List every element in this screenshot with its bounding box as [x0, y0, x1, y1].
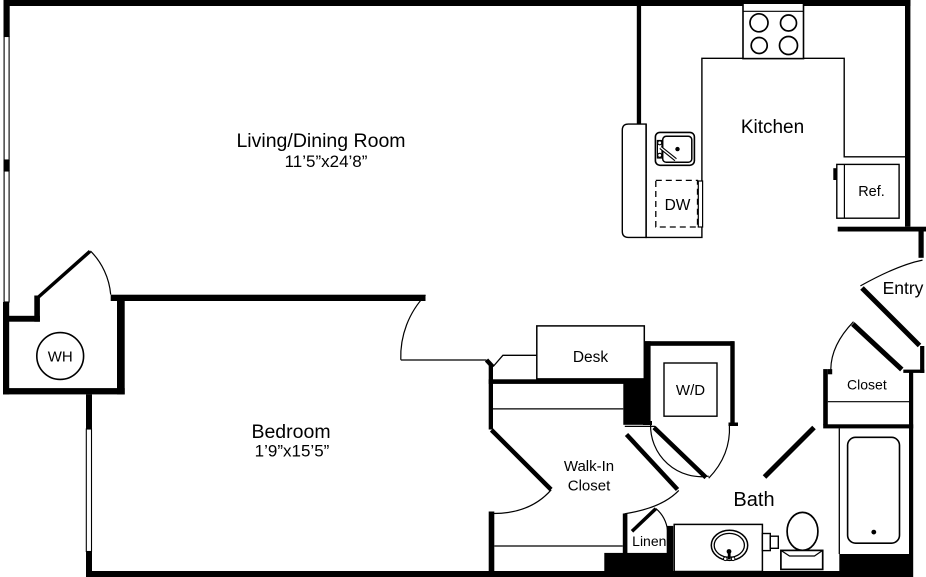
svg-text:Closet: Closet [568, 478, 611, 495]
svg-text:DW: DW [665, 197, 691, 214]
svg-text:Entry: Entry [883, 278, 924, 298]
svg-text:Desk: Desk [573, 349, 609, 366]
svg-text:Walk-In: Walk-In [564, 458, 614, 475]
svg-text:Living/Dining Room: Living/Dining Room [236, 130, 405, 152]
svg-text:W/D: W/D [676, 382, 705, 399]
svg-text:11’5”x24’8”: 11’5”x24’8” [285, 152, 368, 171]
svg-text:Bath: Bath [733, 489, 774, 511]
svg-text:1’9”x15’5”: 1’9”x15’5” [255, 442, 330, 461]
svg-text:WH: WH [48, 349, 73, 366]
svg-text:Closet: Closet [847, 377, 887, 393]
svg-text:Ref.: Ref. [858, 184, 885, 200]
svg-text:Kitchen: Kitchen [741, 117, 804, 138]
svg-text:Linen: Linen [632, 533, 666, 549]
svg-text:Bedroom: Bedroom [251, 421, 330, 443]
